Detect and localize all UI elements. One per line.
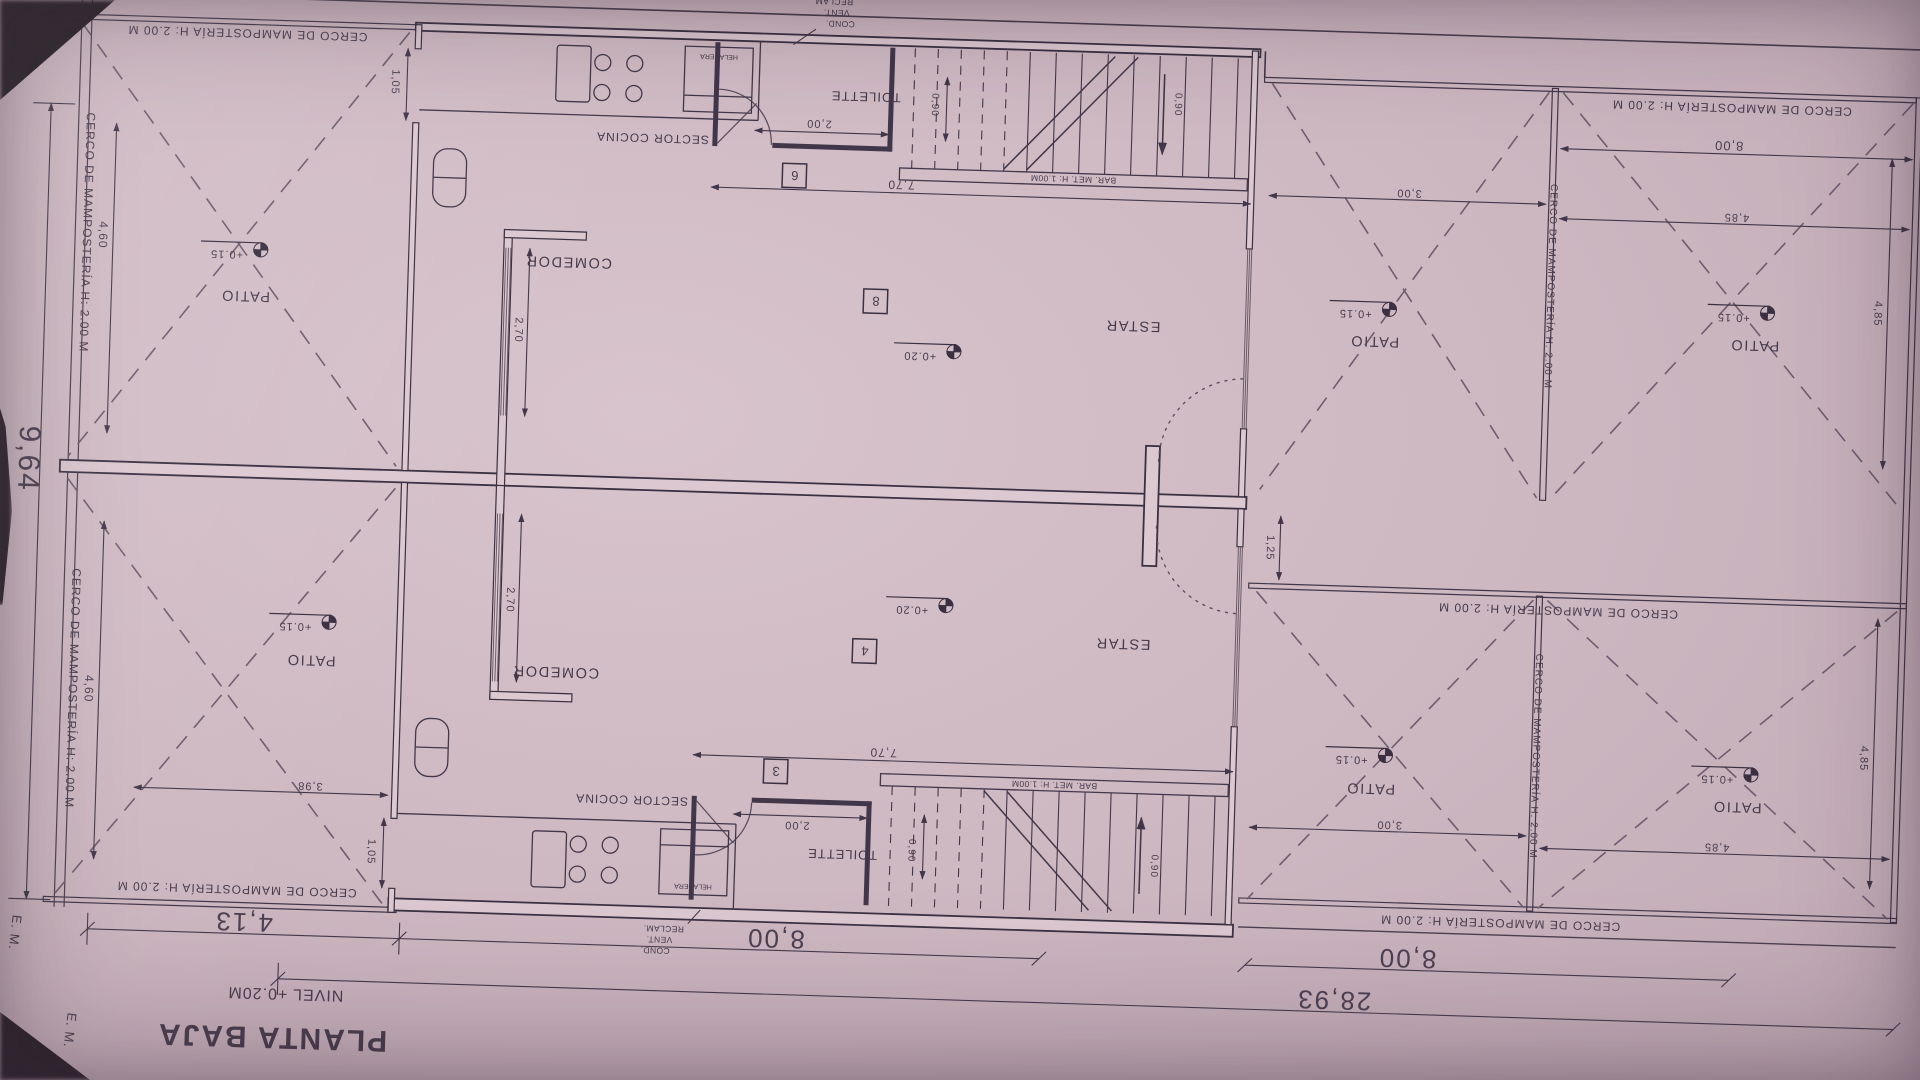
fences [43, 14, 1920, 960]
lot-boundary [0, 0, 1920, 965]
room-label-comedor: COMEDOR [512, 662, 599, 681]
elevation-label: +0.15 [210, 247, 243, 260]
room-tag: 3 [771, 764, 780, 779]
vent-note: RECLAM. [643, 923, 684, 934]
kitchen-lower [394, 718, 739, 910]
dim-label: 4,85 [1724, 211, 1750, 224]
elevation-label: +0.20 [895, 603, 928, 616]
vent-note: VENT. [823, 7, 849, 18]
room-tag: 6 [790, 168, 799, 183]
dim-label: 0,90 [1172, 93, 1184, 117]
dim-label: 4,85 [1871, 301, 1884, 327]
dim-label: 3,00 [1376, 818, 1402, 831]
room-tag-boxes [763, 163, 891, 786]
dim-label-front: 8,00 [1377, 942, 1437, 975]
dim-label-lot-depth: 9,64 [10, 425, 46, 492]
dim-label: 1,25 [1264, 535, 1277, 561]
photo-of-floor-plan: { "photo": { "subject": "architectural f… [0, 0, 1920, 1080]
stairs-upper [899, 48, 1251, 191]
dim-label: 2,70 [504, 587, 517, 613]
dim-label: 4,60 [96, 221, 111, 249]
dim-label: 4,85 [1857, 746, 1870, 772]
vent-note: COND. [640, 945, 670, 956]
plan-linework [0, 0, 1920, 1080]
elevation-label: +0.20 [903, 349, 936, 362]
dim-label: 2,70 [512, 317, 525, 343]
dim-label: 1,05 [389, 69, 402, 95]
floor-plan: CERCO DE MAMPOSTERÍA H: 2.00 M CERCO DE … [0, 0, 1920, 1080]
dim-label: 7,70 [869, 745, 897, 760]
vent-note: COND. [825, 19, 855, 30]
room-label-patio: PATIO [1712, 798, 1762, 816]
room-label-patio: PATIO [220, 287, 270, 305]
dim-label: 3,00 [1396, 187, 1422, 200]
room-label-toilette: TOILETTE [807, 846, 877, 863]
dim-label: 4,85 [1704, 841, 1730, 854]
elevation-label: +0.15 [1717, 311, 1750, 324]
dim-label: 8,00 [1714, 138, 1744, 154]
vent-note: VENT. [646, 934, 672, 945]
dim-label-lot-width: 28,93 [1296, 983, 1372, 1016]
room-label-comedor: COMEDOR [525, 252, 612, 271]
plan-title: PLANTA BAJA [156, 1016, 387, 1057]
elevation-label: +0.15 [278, 620, 311, 633]
level-note: NIVEL +0.20M [227, 982, 343, 1004]
leader-lines [688, 26, 816, 927]
elevation-label: +0.15 [1335, 753, 1368, 766]
dim-label: 3,98 [297, 779, 323, 792]
room-tag: 4 [860, 643, 869, 658]
room-label-estar: ESTAR [1105, 316, 1161, 334]
dim-label: 2,00 [784, 819, 810, 832]
toilette-doors [695, 89, 774, 856]
room-label-toilette: TOILETTE [831, 88, 901, 105]
photo: CERCO DE MAMPOSTERÍA H: 2.00 M CERCO DE … [0, 0, 1920, 1080]
dim-label: 1,05 [365, 839, 378, 865]
dim-label: 0,90 [929, 93, 941, 117]
dim-label: 0,90 [1148, 854, 1160, 878]
dim-label-front: 8,00 [746, 922, 806, 955]
vent-note: RECLAM. [812, 0, 853, 7]
fixture-label-heladera: HELADERA [700, 52, 738, 60]
room-label-estar: ESTAR [1095, 634, 1151, 652]
room-label-patio: PATIO [286, 651, 336, 669]
room-tag: 8 [871, 294, 880, 309]
room-label-patio: PATIO [1350, 332, 1400, 350]
fixture-label-heladera: HELADERA [674, 882, 712, 890]
dim-label-front: 4,13 [214, 905, 274, 938]
dim-label: 2,00 [806, 117, 832, 130]
room-label-patio: PATIO [1730, 336, 1780, 354]
dim-label: 7,70 [887, 178, 915, 193]
stairs-lower [876, 774, 1228, 917]
elevation-label: +0.15 [1339, 307, 1372, 320]
dim-label: 0,90 [905, 839, 917, 863]
room-label-patio: PATIO [1345, 779, 1395, 797]
paper-sheet: CERCO DE MAMPOSTERÍA H: 2.00 M CERCO DE … [0, 0, 1920, 1080]
elevation-label: +0.15 [1700, 772, 1733, 785]
dim-label: 4,60 [81, 675, 96, 703]
patio-crosses [54, 22, 1913, 951]
